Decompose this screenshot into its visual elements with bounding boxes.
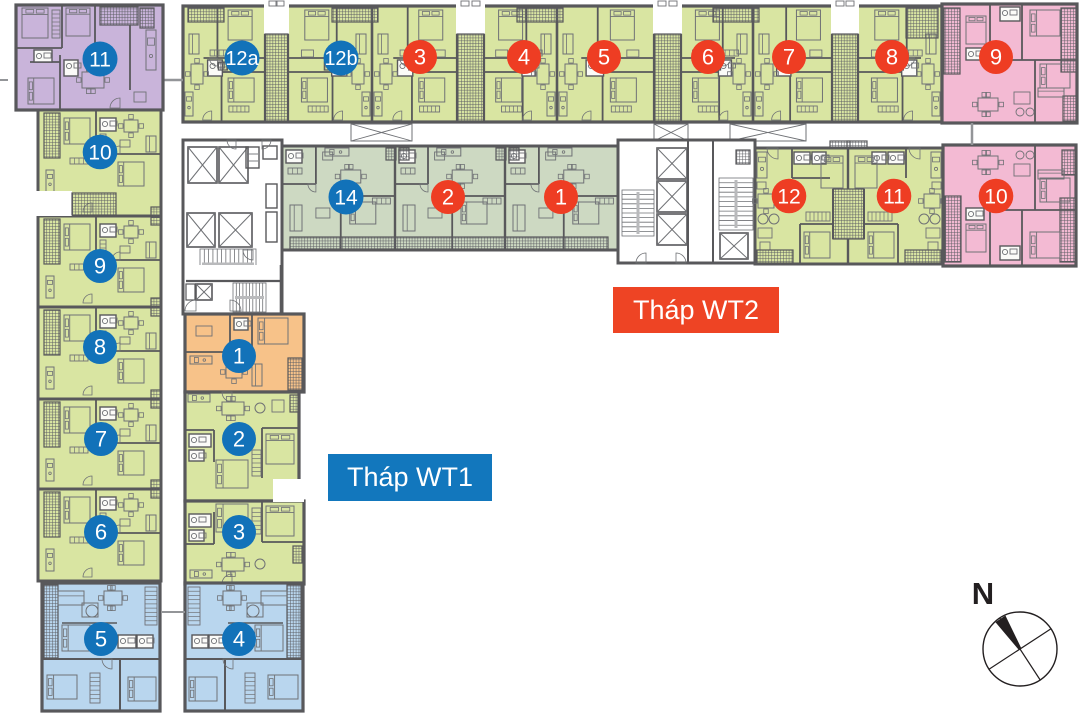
svg-text:1: 1 [233, 344, 245, 369]
svg-text:N: N [972, 576, 994, 611]
svg-text:2: 2 [233, 427, 245, 452]
svg-text:12: 12 [777, 185, 800, 208]
svg-text:10: 10 [984, 185, 1007, 208]
svg-text:11: 11 [883, 185, 905, 208]
svg-text:10: 10 [88, 141, 111, 164]
svg-text:4: 4 [518, 45, 530, 70]
svg-text:7: 7 [95, 427, 107, 452]
svg-text:12a: 12a [225, 48, 259, 70]
svg-text:4: 4 [233, 627, 245, 652]
svg-text:6: 6 [702, 45, 714, 70]
svg-text:3: 3 [233, 520, 245, 545]
svg-text:5: 5 [598, 45, 610, 70]
svg-text:8: 8 [94, 335, 106, 360]
svg-text:9: 9 [94, 254, 106, 279]
svg-text:3: 3 [414, 45, 426, 70]
svg-text:5: 5 [95, 627, 107, 652]
svg-text:14: 14 [334, 186, 358, 209]
svg-text:9: 9 [990, 45, 1002, 70]
svg-text:12b: 12b [324, 48, 357, 70]
svg-text:8: 8 [886, 45, 898, 70]
svg-text:11: 11 [89, 48, 111, 71]
svg-text:2: 2 [442, 185, 454, 210]
svg-text:6: 6 [95, 520, 107, 545]
svg-text:1: 1 [555, 185, 567, 210]
svg-text:Tháp WT2: Tháp WT2 [633, 295, 759, 325]
svg-text:Tháp WT1: Tháp WT1 [347, 462, 473, 492]
svg-text:7: 7 [783, 45, 795, 70]
